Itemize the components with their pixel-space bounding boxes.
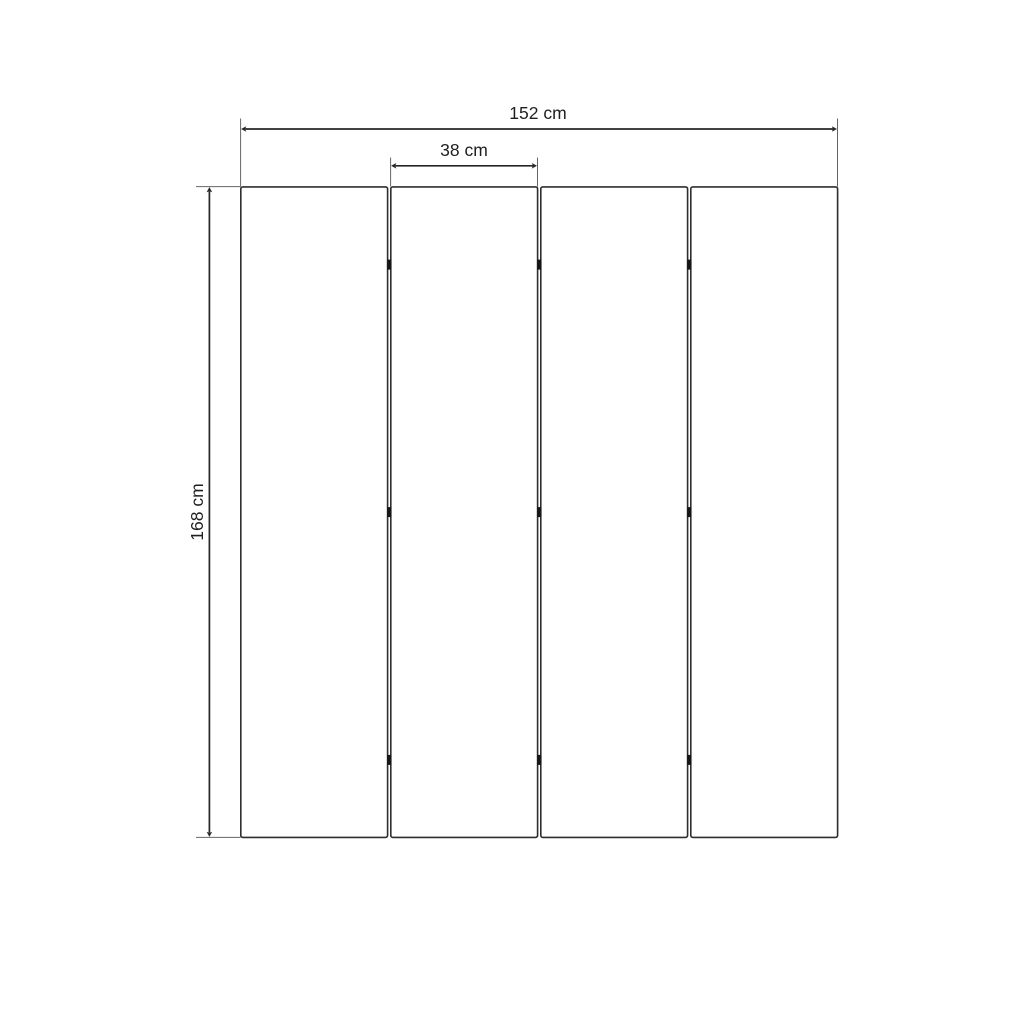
svg-text:168 cm: 168 cm: [187, 483, 207, 540]
svg-text:38 cm: 38 cm: [440, 140, 488, 160]
svg-text:152 cm: 152 cm: [509, 103, 566, 123]
